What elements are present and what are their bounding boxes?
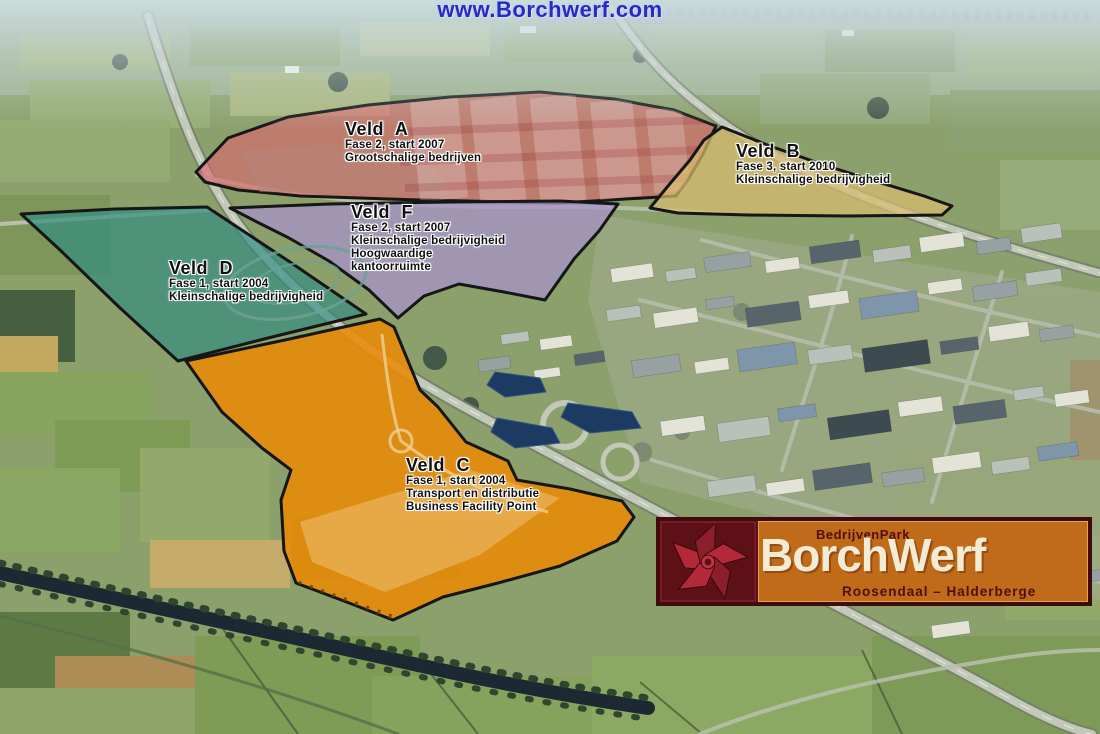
zone-label-veld-a: Veld A Fase 2, start 2007 Grootschalige … (345, 119, 481, 165)
aerial-photo-backdrop (0, 0, 1100, 734)
zone-title: Veld F (351, 202, 505, 222)
zone-label-veld-d: Veld D Fase 1, start 2004 Kleinschalige … (169, 258, 323, 304)
zone-description: Business Facility Point (406, 501, 539, 514)
zone-title: Veld C (406, 455, 539, 475)
zone-title: Veld B (736, 141, 890, 161)
logo-brand-name: BorchWerf (760, 532, 1088, 578)
zone-label-veld-b: Veld B Fase 3, start 2010 Kleinschalige … (736, 141, 890, 187)
zone-description: Kleinschalige bedrijvigheid (736, 174, 890, 187)
zone-phase: Fase 2, start 2007 (351, 222, 505, 235)
zone-label-veld-c: Veld C Fase 1, start 2004 Transport en d… (406, 455, 539, 514)
pinwheel-logo-icon (660, 521, 756, 602)
zone-description: Kleinschalige bedrijvigheid (169, 291, 323, 304)
zone-description: kantoorruimte (351, 261, 505, 274)
zone-phase: Fase 1, start 2004 (169, 278, 323, 291)
zone-title: Veld A (345, 119, 481, 139)
zone-phase: Fase 2, start 2007 (345, 139, 481, 152)
zone-title: Veld D (169, 258, 323, 278)
zone-description: Transport en distributie (406, 488, 539, 501)
website-url[interactable]: www.Borchwerf.com (0, 0, 1100, 23)
zone-description: Hoogwaardige (351, 248, 505, 261)
zone-phase: Fase 3, start 2010 (736, 161, 890, 174)
zone-phase: Fase 1, start 2004 (406, 475, 539, 488)
zone-description: Grootschalige bedrijven (345, 152, 481, 165)
borchwerf-park-map: www.Borchwerf.com Veld A Fase 2, start 2… (0, 0, 1100, 734)
zone-label-veld-f: Veld F Fase 2, start 2007 Kleinschalige … (351, 202, 505, 274)
borchwerf-logo: BedrijvenPark BorchWerf Roosendaal – Hal… (656, 517, 1092, 606)
logo-panel: BedrijvenPark BorchWerf Roosendaal – Hal… (758, 521, 1088, 602)
logo-region: Roosendaal – Halderberge (842, 584, 1036, 599)
zone-description: Kleinschalige bedrijvigheid (351, 235, 505, 248)
